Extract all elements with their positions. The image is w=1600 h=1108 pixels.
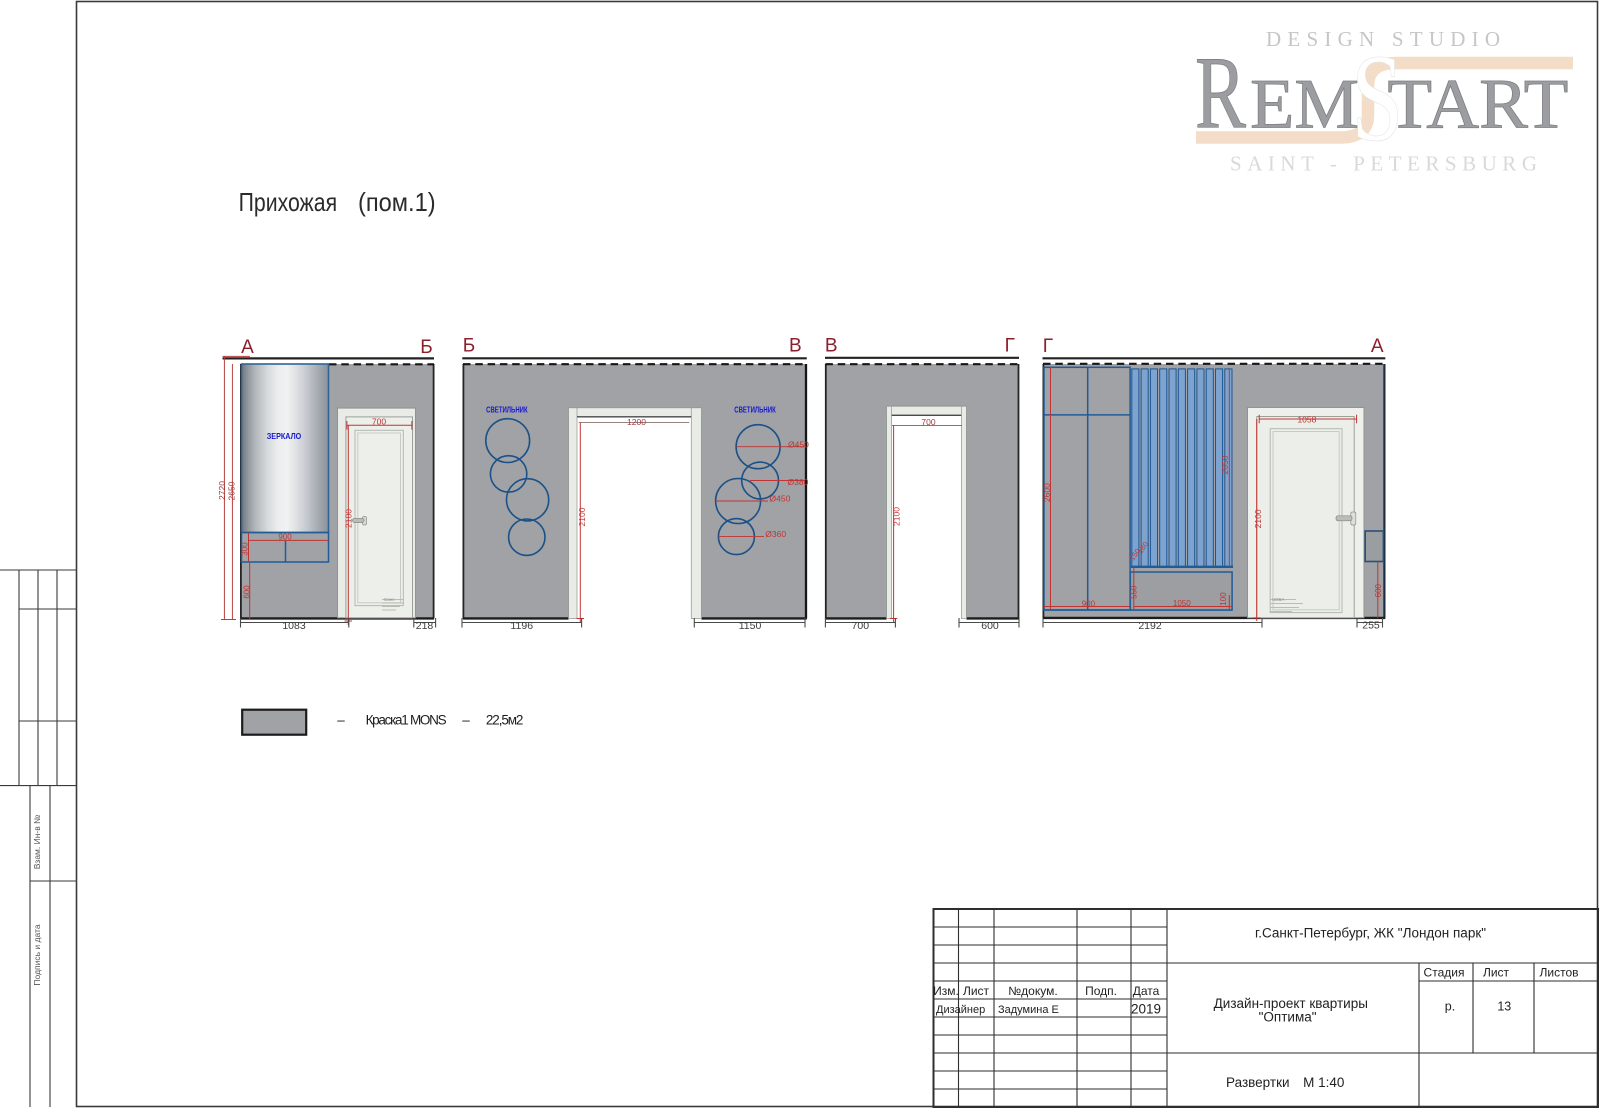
svg-text:Подп.: Подп.	[1085, 984, 1117, 998]
svg-text:1150: 1150	[739, 620, 762, 632]
svg-text:255: 255	[1362, 619, 1380, 631]
svg-text:600: 600	[981, 620, 999, 632]
svg-text:Г: Г	[1005, 336, 1015, 357]
svg-text:UDBA: UDBA	[1272, 597, 1285, 602]
svg-text:В: В	[825, 336, 838, 357]
svg-text:2100: 2100	[577, 507, 587, 526]
svg-text:2720: 2720	[217, 481, 227, 500]
svg-text:22,5м2: 22,5м2	[486, 713, 524, 728]
svg-text:М 1:40: М 1:40	[1303, 1075, 1344, 1090]
svg-text:300: 300	[240, 542, 249, 556]
svg-text:Лист: Лист	[963, 984, 990, 998]
svg-text:2100: 2100	[344, 509, 354, 528]
svg-text:2050: 2050	[1220, 455, 1230, 474]
svg-text:700: 700	[372, 416, 386, 426]
svg-text:Б: Б	[463, 336, 475, 357]
svg-text:Взам. Ин-в №: Взам. Ин-в №	[32, 815, 42, 870]
svg-text:Ø360: Ø360	[765, 529, 786, 539]
svg-text:900: 900	[1082, 599, 1096, 608]
svg-text:13: 13	[1497, 1000, 1511, 1014]
svg-text:Дата: Дата	[1133, 984, 1160, 998]
svg-text:1050: 1050	[1173, 599, 1191, 608]
svg-text:Стадия: Стадия	[1424, 966, 1465, 980]
svg-text:600: 600	[1374, 583, 1383, 597]
svg-text:900: 900	[278, 532, 292, 541]
svg-text:Ø380: Ø380	[788, 477, 809, 487]
svg-text:100: 100	[1219, 592, 1228, 606]
svg-text:Прихожая: Прихожая	[239, 187, 338, 217]
svg-text:1196: 1196	[511, 620, 534, 632]
svg-text:–: –	[337, 713, 345, 728]
svg-text:А: А	[1371, 336, 1384, 357]
svg-text:2600: 2600	[1042, 483, 1052, 502]
svg-text:Развертки: Развертки	[1226, 1075, 1289, 1090]
svg-text:Ø450: Ø450	[770, 494, 791, 504]
svg-text:1200: 1200	[627, 417, 646, 427]
svg-text:(пом.1): (пом.1)	[358, 187, 436, 217]
svg-text:600: 600	[242, 585, 251, 599]
svg-text:В: В	[789, 336, 802, 357]
svg-text:Изм.: Изм.	[933, 984, 959, 998]
svg-text:СВЕТИЛЬНИК: СВЕТИЛЬНИК	[486, 406, 528, 415]
svg-text:Ø450: Ø450	[788, 439, 809, 449]
svg-text:Г: Г	[1043, 336, 1053, 357]
svg-text:2192: 2192	[1138, 620, 1162, 632]
svg-text:Листов: Листов	[1540, 966, 1579, 980]
svg-text:Санс: Санс	[384, 597, 395, 602]
svg-text:1058: 1058	[1297, 415, 1316, 425]
svg-text:EM: EM	[1250, 66, 1359, 144]
svg-text:ЗЕРКАЛО: ЗЕРКАЛО	[267, 431, 302, 441]
svg-text:Краска1 MONS: Краска1 MONS	[366, 713, 447, 728]
svg-text:А: А	[241, 337, 254, 358]
svg-text:2100: 2100	[892, 507, 902, 526]
svg-text:218: 218	[416, 620, 434, 632]
svg-text:R: R	[1195, 36, 1246, 151]
svg-text:Лист: Лист	[1483, 966, 1510, 980]
svg-text:Дизайнер: Дизайнер	[936, 1004, 985, 1016]
svg-text:550: 550	[1130, 585, 1139, 599]
svg-text:2100: 2100	[1253, 509, 1263, 528]
svg-text:СВЕТИЛЬНИК: СВЕТИЛЬНИК	[734, 405, 776, 414]
svg-text:2650: 2650	[227, 481, 237, 500]
svg-text:700: 700	[852, 620, 870, 632]
svg-text:1083: 1083	[282, 620, 306, 632]
svg-text:2019: 2019	[1131, 1002, 1161, 1017]
svg-text:Подпись и дата: Подпись и дата	[32, 924, 42, 985]
svg-text:Задумина Е: Задумина Е	[998, 1004, 1059, 1016]
svg-text:№докум.: №докум.	[1008, 984, 1057, 998]
svg-text:TART: TART	[1387, 66, 1568, 144]
svg-text:700: 700	[921, 417, 935, 427]
svg-text:Б: Б	[420, 337, 432, 358]
svg-text:г.Санкт-Петербург, ЖК "Лондо: г.Санкт-Петербург, ЖК "Лондон парк"	[1255, 926, 1486, 941]
svg-text:–: –	[462, 713, 470, 728]
svg-text:р.: р.	[1445, 1000, 1455, 1014]
svg-text:"Оптима": "Оптима"	[1259, 1010, 1317, 1025]
